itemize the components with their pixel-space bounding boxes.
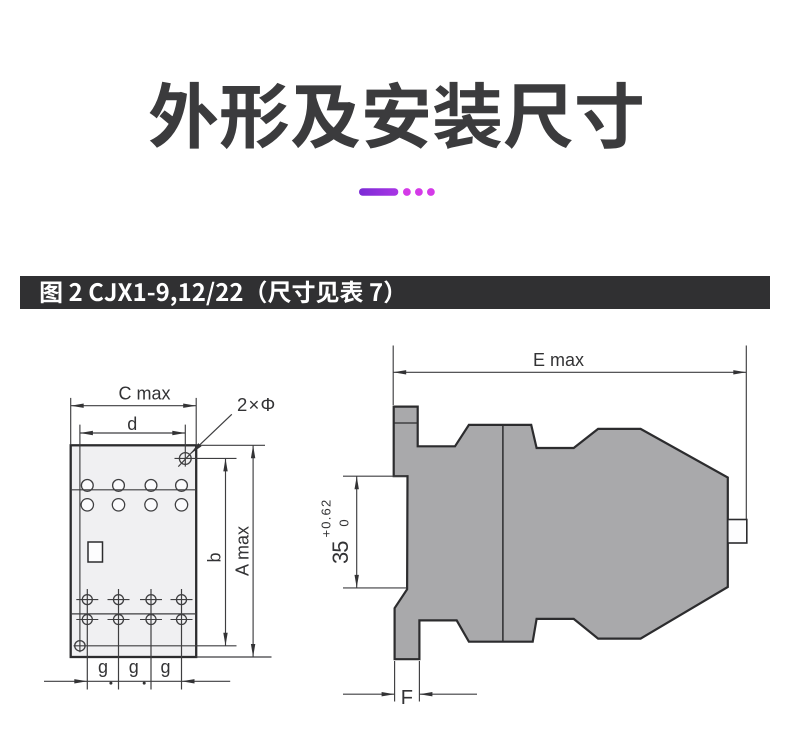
svg-text:g: g [160,657,170,677]
svg-text:b: b [205,552,225,562]
svg-text:A max: A max [233,526,253,576]
svg-text:+0.62: +0.62 [319,499,334,538]
svg-text:E max: E max [533,350,584,370]
svg-text:g: g [98,657,108,677]
svg-text:35: 35 [328,541,353,564]
svg-text:C max: C max [118,384,170,404]
svg-text:g: g [129,657,139,677]
svg-text:d: d [127,414,137,434]
svg-text:0: 0 [337,519,352,526]
svg-text:2×Φ: 2×Φ [237,394,276,415]
svg-text:F: F [401,687,413,709]
